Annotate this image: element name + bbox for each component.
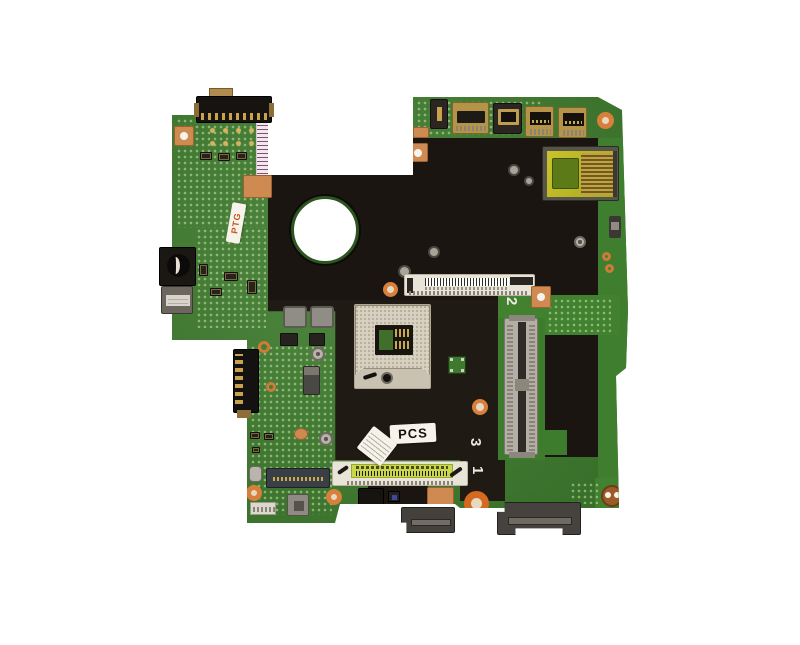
copper-ring xyxy=(266,382,276,392)
cavity-contacts xyxy=(395,341,409,349)
pad-dot xyxy=(450,358,453,361)
screw-hole xyxy=(414,149,422,157)
metal-standoff xyxy=(574,236,586,248)
metal-standoff xyxy=(319,432,333,446)
power-port xyxy=(430,99,448,129)
pad-dot xyxy=(450,369,453,372)
label-text-line xyxy=(356,466,448,469)
board-hole xyxy=(291,196,359,264)
dc-power-jack xyxy=(159,247,196,286)
copper-disc xyxy=(294,428,308,440)
screw xyxy=(508,164,520,176)
power-inductor xyxy=(358,488,384,505)
inductor xyxy=(283,306,307,328)
hdmi-port xyxy=(452,102,489,134)
cavity-contacts xyxy=(395,329,409,337)
slot-contact-row xyxy=(529,323,535,451)
slot-contacts xyxy=(347,481,453,485)
smd-chip xyxy=(388,491,400,502)
jack-shield xyxy=(161,286,193,314)
pad-dot xyxy=(461,358,464,361)
port-inner xyxy=(501,112,516,122)
screw-hole xyxy=(605,492,611,498)
card-module-contacts xyxy=(581,153,614,195)
battery-connector-pins xyxy=(201,113,267,120)
pad-dot xyxy=(461,369,464,372)
screw-hole xyxy=(537,293,545,301)
memory-slot-horizontal xyxy=(332,461,468,486)
jack-highlight xyxy=(171,257,180,274)
copper-pad xyxy=(413,127,429,138)
smd-component-green xyxy=(448,356,466,374)
slot-contacts xyxy=(409,291,529,295)
sata-connector xyxy=(497,502,581,535)
mini-pcie-contacts xyxy=(273,477,325,481)
via-dot-field xyxy=(570,482,598,504)
slot-arrow-mark xyxy=(337,465,349,475)
port-pins xyxy=(563,130,584,136)
battery-connector-pins xyxy=(235,354,243,404)
smd-chip xyxy=(200,152,212,160)
socket-lock-screw xyxy=(381,372,393,384)
usb-contacts xyxy=(565,121,582,124)
ic-chip-metal xyxy=(287,494,309,516)
part-number-label xyxy=(351,464,453,478)
screw xyxy=(428,246,440,258)
connector-slot-top xyxy=(404,274,535,296)
copper-ring xyxy=(258,341,270,353)
mini-pcie-slot xyxy=(266,468,330,488)
copper-pad xyxy=(243,175,272,198)
card-module-chip xyxy=(552,158,579,189)
screw xyxy=(524,176,534,186)
smd-chip xyxy=(264,433,274,440)
cpu-socket-cavity xyxy=(375,325,413,355)
ic-chip xyxy=(280,333,298,346)
connector-foot xyxy=(237,410,251,418)
label-barcode xyxy=(356,471,448,476)
slot-contact-row xyxy=(507,323,513,451)
battery-connector-top xyxy=(196,96,272,123)
copper-ring-screw-large xyxy=(464,491,489,516)
smd-chip xyxy=(252,447,260,453)
port-opening xyxy=(457,111,485,123)
pcb-board: PTG xyxy=(0,0,800,645)
usb-port xyxy=(525,106,554,137)
usb-port xyxy=(558,107,587,138)
sata-slot-opening xyxy=(411,519,451,526)
metal-standoff xyxy=(311,347,325,361)
smd-chip xyxy=(224,272,238,281)
smd-chip xyxy=(218,153,230,161)
port-pins xyxy=(530,129,551,135)
ffc-contacts xyxy=(253,507,275,512)
capacitor xyxy=(303,366,320,395)
capacitor-cylinder xyxy=(249,466,262,482)
pcs-sticker-text: PCS xyxy=(398,425,428,442)
card-module-frame xyxy=(542,146,619,201)
switch-knob xyxy=(611,222,619,230)
copper-ring-screw xyxy=(597,112,614,129)
silkscreen-slot-1: 1 xyxy=(470,466,486,482)
slot-barcode-text xyxy=(425,287,509,290)
via-dot-field xyxy=(547,298,611,332)
pcb-patch xyxy=(535,430,567,455)
screw-hole xyxy=(614,492,620,498)
screw-hole xyxy=(180,132,188,140)
barcode-sticker-vertical xyxy=(256,120,271,183)
slot-end-cap xyxy=(510,277,533,285)
connector-end xyxy=(194,103,199,117)
copper-ring xyxy=(605,264,614,273)
connector-end xyxy=(269,103,274,117)
chip-die xyxy=(392,495,397,500)
smd-chip xyxy=(247,280,257,294)
inductor xyxy=(310,306,334,328)
ffc-connector xyxy=(250,502,276,515)
card-module-edge xyxy=(613,151,617,197)
display-port xyxy=(493,103,522,134)
chip-core xyxy=(294,501,304,511)
pcs-sticker: PCS xyxy=(390,423,437,444)
copper-ring-screw xyxy=(246,485,262,501)
silkscreen-slot-3: 3 xyxy=(468,438,484,454)
port-pin xyxy=(437,107,442,121)
slot-barcode xyxy=(425,278,509,286)
slot-key-notch xyxy=(515,379,529,391)
usb-opening xyxy=(563,113,584,126)
usb-contacts xyxy=(532,120,549,123)
silkscreen-slot-2: 2 xyxy=(504,297,520,313)
jack-label xyxy=(166,295,190,306)
copper-ring-screw xyxy=(326,489,342,505)
copper-ring-screw xyxy=(472,399,488,415)
smd-chip xyxy=(250,432,260,439)
copper-pad xyxy=(427,487,454,507)
copper-ring xyxy=(602,252,611,261)
smd-chip xyxy=(210,288,222,296)
ptg-sticker-text: PTG xyxy=(229,212,243,235)
cpu-socket xyxy=(354,304,431,389)
usb-opening xyxy=(530,112,551,125)
port-pins xyxy=(456,126,486,131)
gold-pin-cluster xyxy=(206,124,258,150)
slot-latch xyxy=(509,315,535,321)
jack-label-text xyxy=(168,297,188,305)
cavity-pcb xyxy=(379,330,393,350)
slot-latch xyxy=(509,452,535,458)
micro-switch xyxy=(609,216,621,238)
memory-slot-vertical xyxy=(504,318,538,455)
sata-connector xyxy=(401,507,455,533)
smd-chip xyxy=(236,152,247,160)
battery-connector-side xyxy=(233,349,259,413)
product-photo-motherboard: PTG xyxy=(0,0,800,645)
smd-chip xyxy=(199,264,208,276)
sata-slot-opening xyxy=(508,517,572,525)
copper-ring-screw xyxy=(383,282,398,297)
ic-chip xyxy=(309,333,325,346)
